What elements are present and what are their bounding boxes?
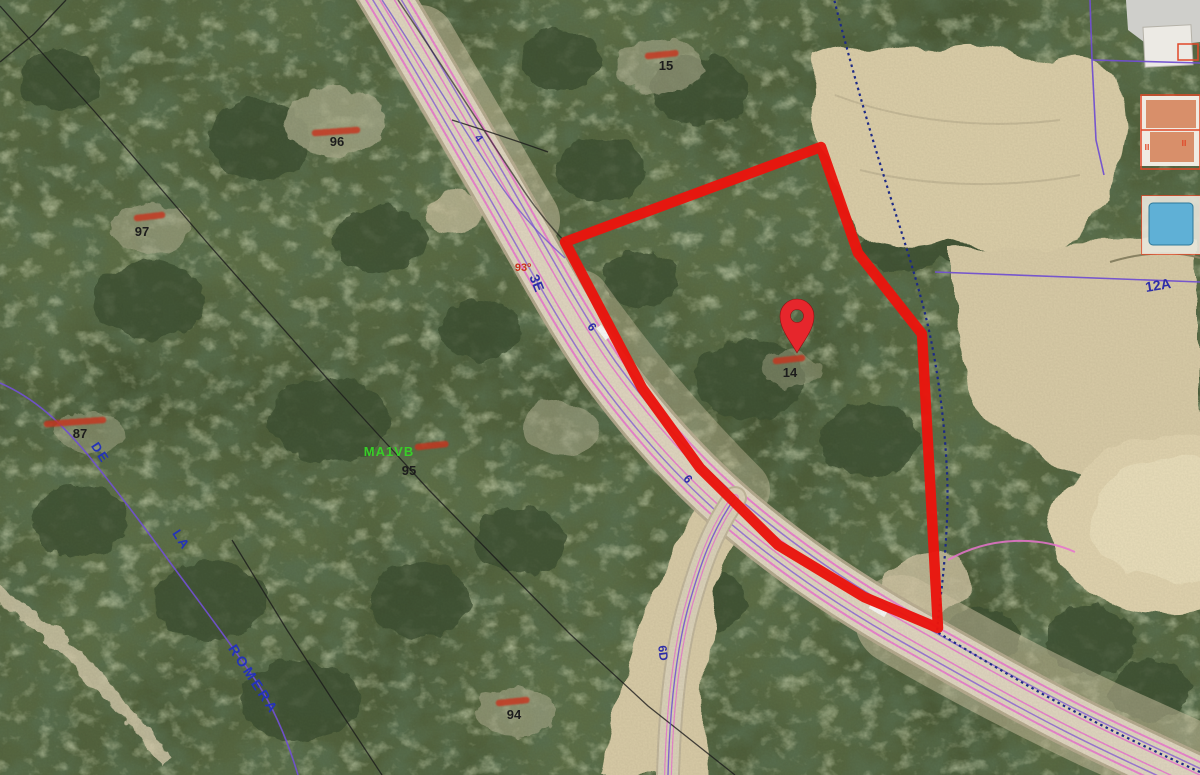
map-viewport[interactable]: 96 97 95 94 15 14 87 4 3E 6 6 6D 12A 93º…	[0, 0, 1200, 775]
building-roof-b	[1150, 132, 1194, 162]
parcel-label-97: 97	[135, 224, 149, 239]
parcel-label-95: 95	[402, 463, 416, 478]
parcel-label-94: 94	[507, 707, 522, 722]
floor-mark-1: II	[1145, 142, 1150, 152]
road-label-6d: 6D	[655, 645, 671, 662]
parcel-label-96: 96	[330, 134, 344, 149]
swimming-pool	[1149, 203, 1193, 245]
red-annotation-mark	[418, 444, 446, 447]
floor-mark-2: II	[1182, 138, 1187, 148]
red-survey-number: 93º	[515, 262, 531, 274]
red-annotation-mark	[47, 420, 103, 424]
red-annotation-mark	[137, 215, 162, 218]
terrain-layer	[0, 0, 1200, 775]
red-annotation-mark	[315, 130, 357, 133]
parcel-label-15: 15	[659, 58, 673, 73]
parcel-label-14: 14	[783, 365, 798, 380]
land-use-code-label: MA1VB	[364, 444, 415, 459]
grain-texture	[0, 0, 1200, 775]
red-annotation-mark	[776, 358, 802, 361]
red-annotation-mark	[499, 700, 527, 703]
parcel-label-87: 87	[73, 426, 87, 441]
building-roof-a	[1146, 100, 1196, 128]
red-annotation-mark	[648, 53, 677, 56]
